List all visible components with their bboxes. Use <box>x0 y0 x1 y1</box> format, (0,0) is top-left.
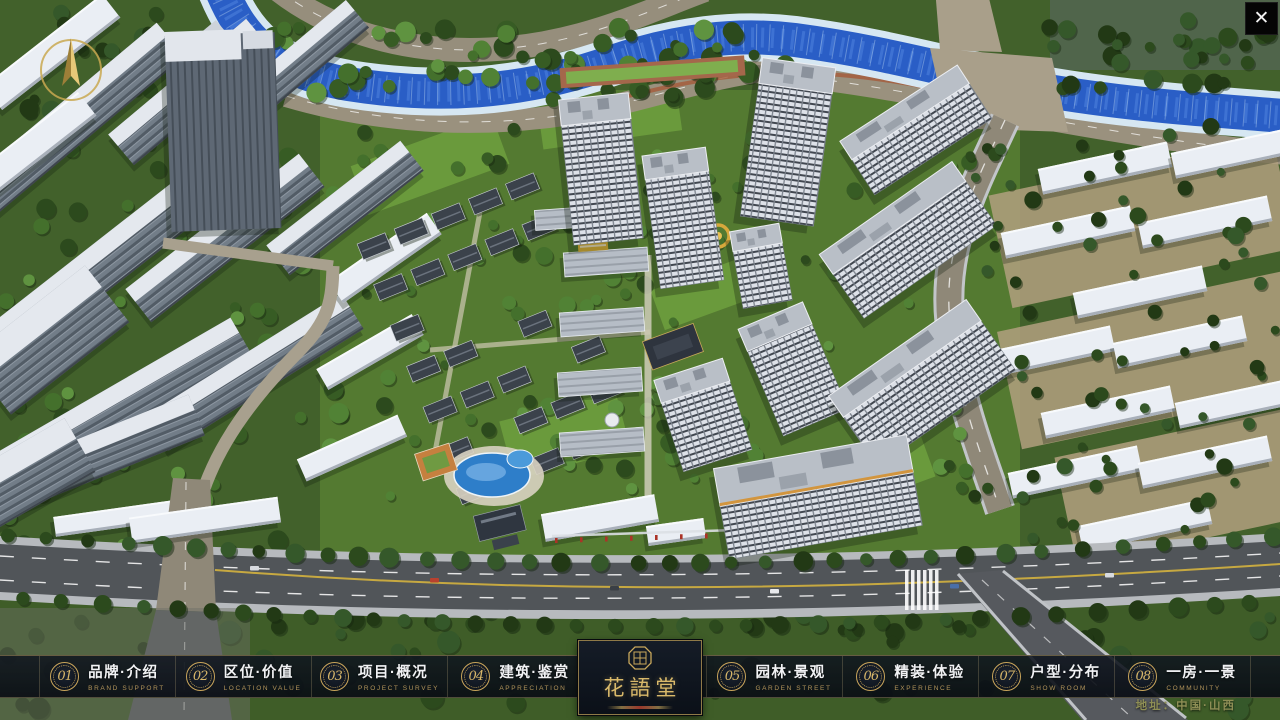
chapter-badge: 02 <box>186 662 215 691</box>
nav-sublabel: LOCATION VALUE <box>224 685 302 692</box>
nav-item-architecture[interactable]: 04 建筑·鉴赏 APPRECIATION <box>447 656 583 697</box>
seal-icon <box>628 646 652 670</box>
nav-label: 园林·景观 <box>755 661 825 682</box>
chapter-badge: 01 <box>50 662 79 691</box>
nav-item-floorplan[interactable]: 07 户型·分布 SHOW ROOM <box>978 656 1114 697</box>
nav-item-project[interactable]: 03 项目·概况 PROJECT SURVEY <box>311 656 447 697</box>
close-icon: ✕ <box>1254 9 1270 28</box>
nav-label: 项目·概况 <box>358 661 428 682</box>
nav-sublabel: GARDEN STREET <box>755 685 831 692</box>
nav-sublabel: APPRECIATION <box>499 685 566 692</box>
chapter-badge: 06 <box>856 662 885 691</box>
nav-item-garden[interactable]: 05 园林·景观 GARDEN STREET <box>706 656 842 697</box>
nav-label: 品牌·介绍 <box>88 661 158 682</box>
nav-label: 建筑·鉴赏 <box>499 661 569 682</box>
nav-label: 户型·分布 <box>1030 661 1100 682</box>
nav-item-location[interactable]: 02 区位·价值 LOCATION VALUE <box>175 656 311 697</box>
nav-label: 一房·一景 <box>1166 661 1236 682</box>
chapter-badge: 08 <box>1128 662 1157 691</box>
presentation-window: ✕ 01 品牌·介绍 BRAND SUPPORT 02 区位·价值 LOCATI… <box>0 0 1280 720</box>
nav-sublabel: PROJECT SURVEY <box>358 685 439 692</box>
nav-label: 区位·价值 <box>224 661 294 682</box>
aerial-render <box>0 0 1280 720</box>
chapter-badge: 03 <box>320 662 349 691</box>
chapter-badge: 07 <box>992 662 1021 691</box>
nav-item-brand[interactable]: 01 品牌·介绍 BRAND SUPPORT <box>39 656 175 697</box>
logo-divider <box>607 706 673 709</box>
masterplan-map[interactable] <box>0 0 1280 720</box>
nav-label: 精装·体验 <box>894 661 964 682</box>
navbar-right-pad <box>1250 656 1280 697</box>
nav-item-interior[interactable]: 06 精装·体验 EXPERIENCE <box>842 656 978 697</box>
nav-sublabel: COMMUNITY <box>1166 685 1220 692</box>
chapter-badge: 05 <box>717 662 746 691</box>
project-address: 地址：中国·山西 <box>1136 697 1236 713</box>
chapter-badge: 04 <box>461 662 490 691</box>
navbar-left-pad <box>0 656 39 697</box>
close-button[interactable]: ✕ <box>1246 3 1277 34</box>
nav-item-community[interactable]: 08 一房·一景 COMMUNITY <box>1114 656 1250 697</box>
project-logo-panel[interactable]: 花語堂 <box>578 640 702 715</box>
project-logo-title: 花語堂 <box>599 672 682 702</box>
nav-sublabel: BRAND SUPPORT <box>88 685 165 692</box>
nav-sublabel: SHOW ROOM <box>1030 685 1087 692</box>
nav-sublabel: EXPERIENCE <box>894 685 952 692</box>
